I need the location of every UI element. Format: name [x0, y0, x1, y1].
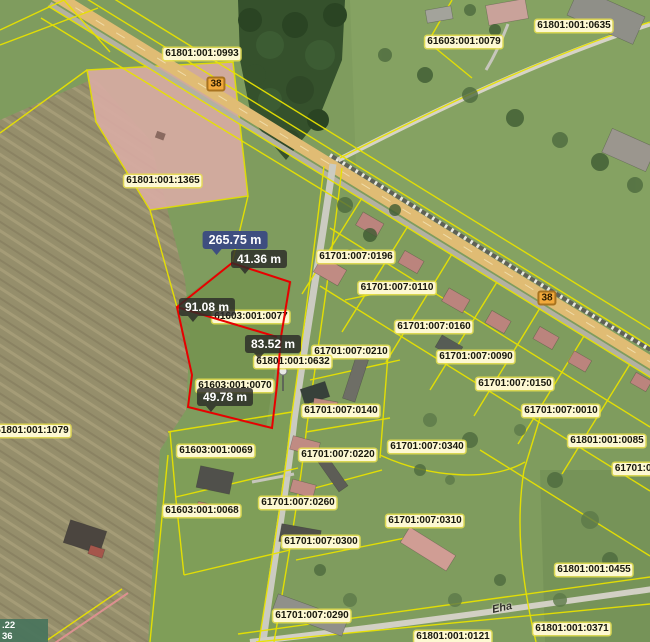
coordinate-line-1: .22: [2, 620, 48, 631]
map-viewport[interactable]: 61801:001:099361603:001:007961801:001:06…: [0, 0, 650, 642]
measurement-segment-label: 49.78 m: [197, 388, 253, 406]
coordinate-line-2: 36: [2, 631, 48, 642]
measurement-total-label: 265.75 m: [203, 231, 268, 249]
coordinate-readout: .22 36: [0, 619, 48, 642]
measurement-segment-label: 91.08 m: [179, 298, 235, 316]
measurement-segment-label: 83.52 m: [245, 335, 301, 353]
measurement-label-layer: 265.75 m41.36 m91.08 m83.52 m49.78 m: [0, 0, 650, 642]
measurement-segment-label: 41.36 m: [231, 250, 287, 268]
